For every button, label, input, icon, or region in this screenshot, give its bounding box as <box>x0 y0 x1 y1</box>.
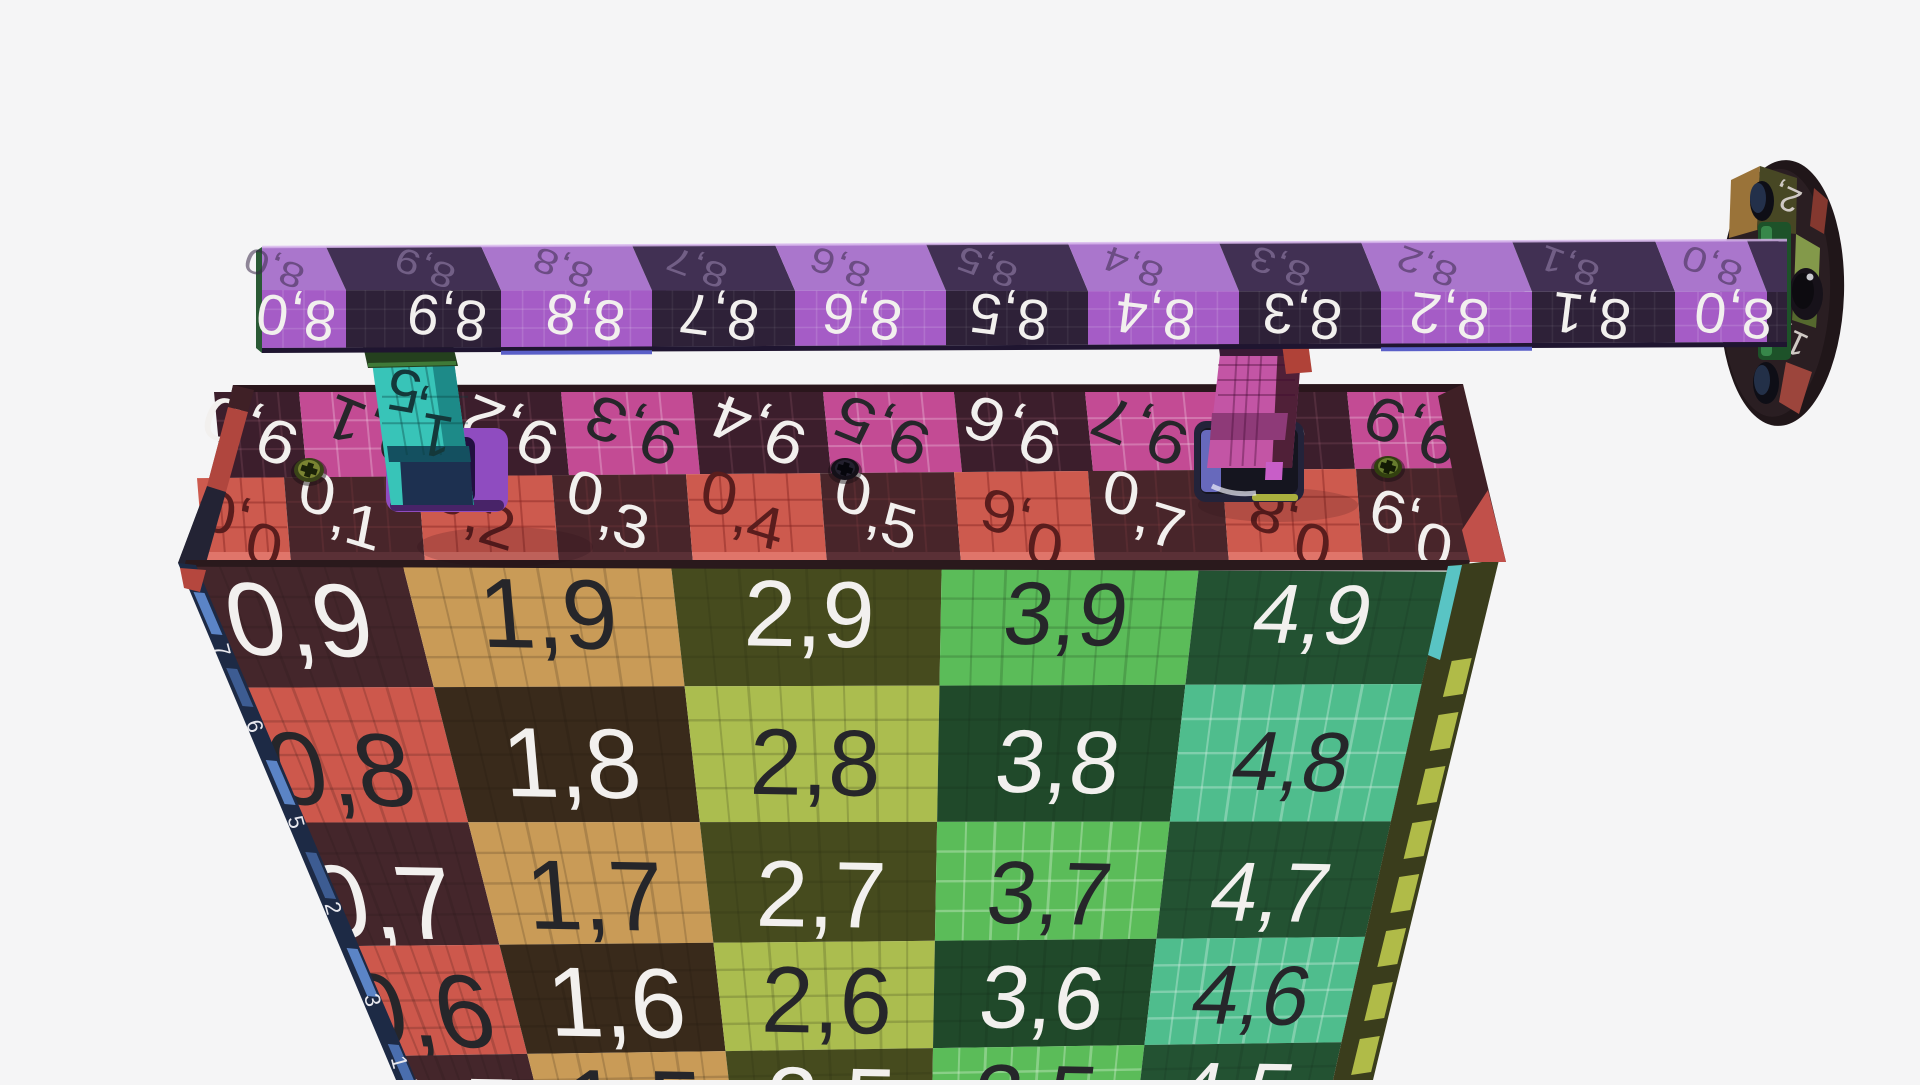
svg-text:4,9: 4,9 <box>1245 566 1381 662</box>
svg-text:1,5: 1,5 <box>562 1049 710 1080</box>
svg-text:3,8: 3,8 <box>990 711 1126 813</box>
svg-text:2,8: 2,8 <box>749 709 882 816</box>
svg-text:1,6: 1,6 <box>543 947 691 1060</box>
svg-text:4,7: 4,7 <box>1202 844 1338 940</box>
svg-text:4,5: 4,5 <box>1167 1044 1303 1080</box>
svg-text:4,6: 4,6 <box>1184 947 1320 1043</box>
svg-text:0,9: 0,9 <box>214 562 384 680</box>
svg-text:1,7: 1,7 <box>522 840 670 953</box>
svg-text:2,9: 2,9 <box>743 560 876 667</box>
svg-text:3,5: 3,5 <box>968 1045 1104 1080</box>
svg-text:3,9: 3,9 <box>998 563 1134 665</box>
svg-text:4,8: 4,8 <box>1224 713 1360 809</box>
svg-text:3,6: 3,6 <box>974 947 1110 1049</box>
svg-text:2,7: 2,7 <box>755 841 888 948</box>
svg-text:2,6: 2,6 <box>760 946 893 1053</box>
svg-text:1,8: 1,8 <box>498 707 646 820</box>
svg-text:2,5: 2,5 <box>765 1047 898 1080</box>
svg-text:1,9: 1,9 <box>475 558 623 671</box>
svg-text:3,7: 3,7 <box>982 842 1118 944</box>
